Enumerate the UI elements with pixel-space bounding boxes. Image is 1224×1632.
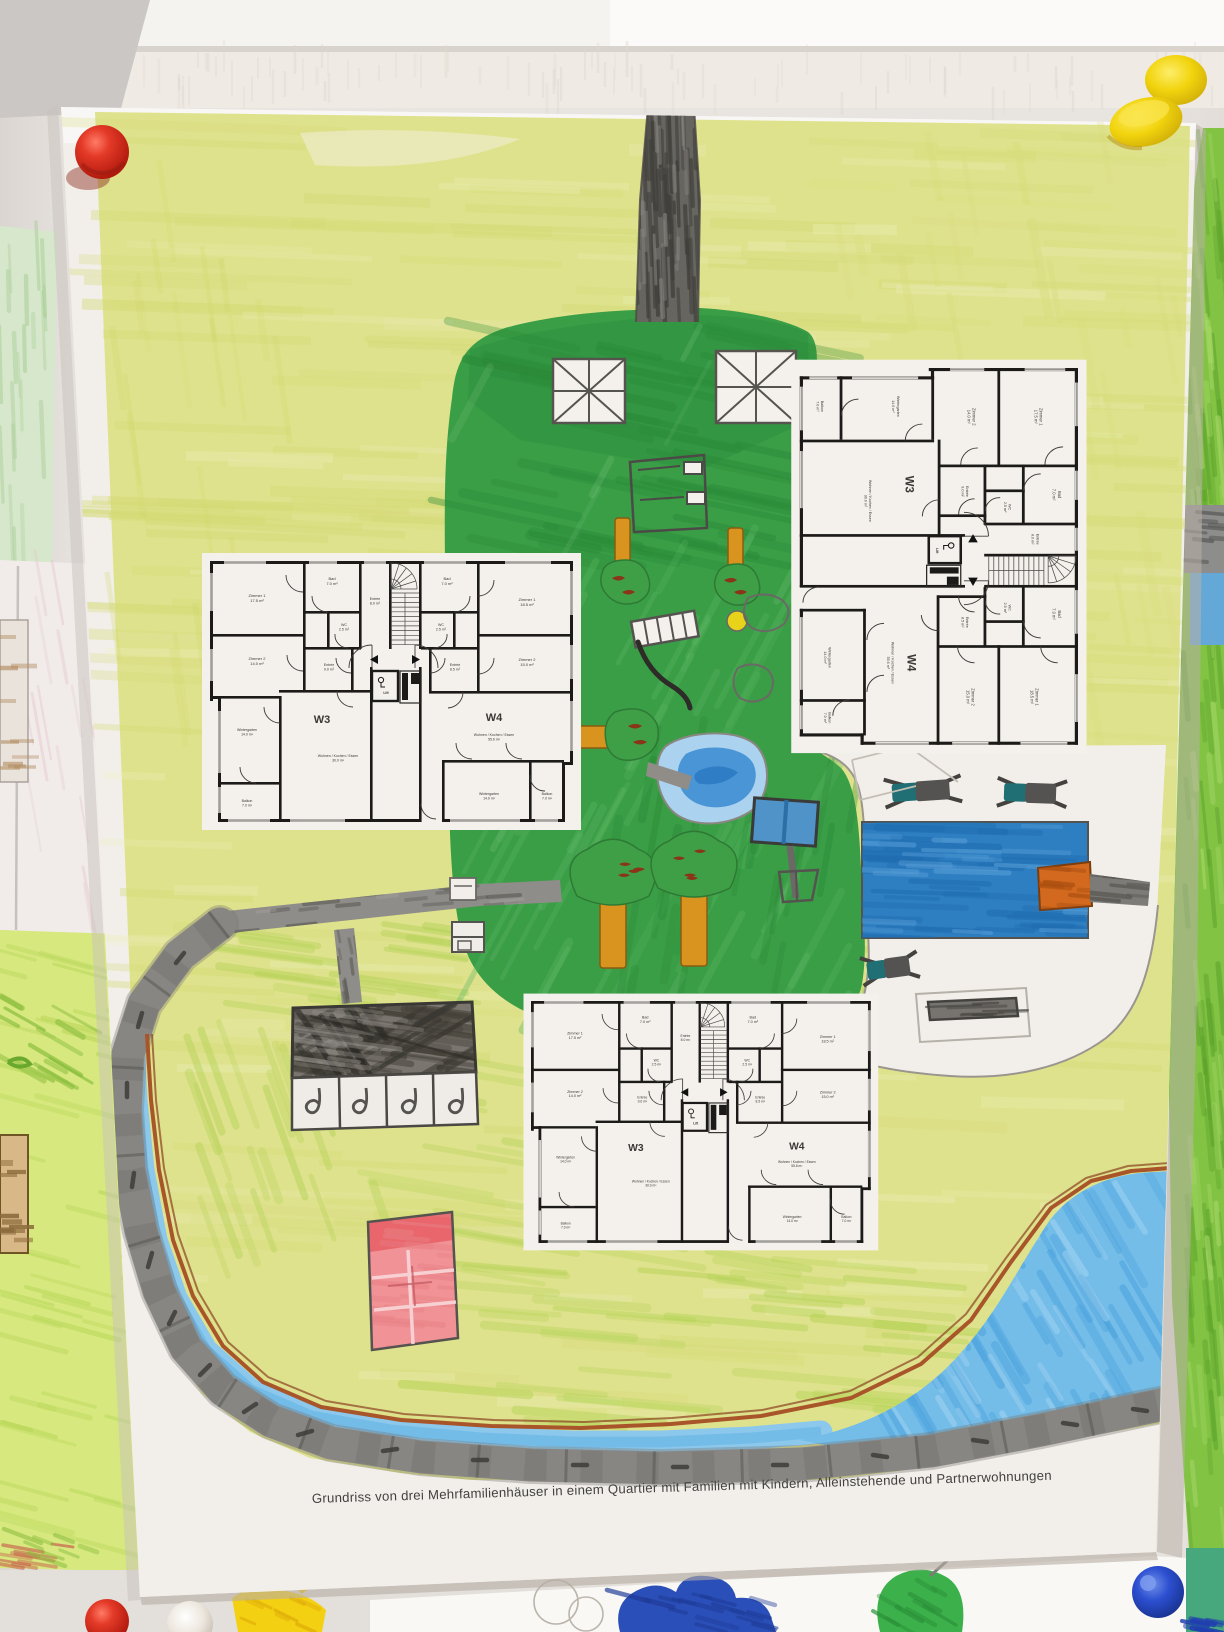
svg-text:W3: W3 xyxy=(628,1143,644,1154)
svg-text:Zimmer 118.5 m²: Zimmer 118.5 m² xyxy=(1029,688,1039,706)
svg-text:W4: W4 xyxy=(904,654,916,672)
svg-text:Balkon7.0 m²: Balkon7.0 m² xyxy=(815,401,824,412)
svg-text:Zimmer 215.0 m²: Zimmer 215.0 m² xyxy=(519,657,537,667)
svg-text:Lift: Lift xyxy=(935,548,939,554)
svg-text:Entrée8.0 m²: Entrée8.0 m² xyxy=(370,597,381,605)
svg-text:Lift: Lift xyxy=(383,691,389,695)
svg-text:Entrée9.0 m²: Entrée9.0 m² xyxy=(637,1095,648,1103)
svg-text:Entrée9.0 m²: Entrée9.0 m² xyxy=(960,486,969,497)
svg-text:Zimmer 117.5 m²: Zimmer 117.5 m² xyxy=(249,593,267,603)
svg-text:Entrée9.0 m²: Entrée9.0 m² xyxy=(324,663,335,671)
svg-text:W3: W3 xyxy=(902,476,914,494)
svg-text:Zimmer 214.0 m²: Zimmer 214.0 m² xyxy=(249,656,267,666)
svg-text:W4: W4 xyxy=(789,1141,805,1152)
svg-text:Balkon7.0 m²: Balkon7.0 m² xyxy=(242,799,253,807)
svg-text:Zimmer 215.0 m²: Zimmer 215.0 m² xyxy=(820,1091,836,1099)
svg-text:Zimmer 118.5 m²: Zimmer 118.5 m² xyxy=(820,1035,836,1043)
svg-text:Entrée8.5 m²: Entrée8.5 m² xyxy=(960,617,969,628)
svg-text:Zimmer 118.5 m²: Zimmer 118.5 m² xyxy=(519,597,537,607)
svg-text:Zimmer 214.0 m²: Zimmer 214.0 m² xyxy=(966,408,976,426)
svg-text:Balkon7.0 m²: Balkon7.0 m² xyxy=(561,1221,572,1229)
svg-text:Entrée8.0 m²: Entrée8.0 m² xyxy=(1031,534,1040,545)
svg-text:Zimmer 117.5 m²: Zimmer 117.5 m² xyxy=(1033,408,1043,426)
svg-text:Zimmer 215.0 m²: Zimmer 215.0 m² xyxy=(965,688,975,706)
svg-text:Zimmer 117.5 m²: Zimmer 117.5 m² xyxy=(567,1031,583,1039)
svg-text:Entrée8.0 m²: Entrée8.0 m² xyxy=(680,1034,691,1042)
svg-text:Balkon7.0 m²: Balkon7.0 m² xyxy=(823,712,832,723)
svg-text:Balkon7.0 m²: Balkon7.0 m² xyxy=(542,792,553,800)
svg-text:Zimmer 214.0 m²: Zimmer 214.0 m² xyxy=(567,1090,583,1098)
svg-text:Entrée8.5 m²: Entrée8.5 m² xyxy=(450,663,461,671)
svg-text:Entrée8.5 m²: Entrée8.5 m² xyxy=(755,1095,766,1103)
svg-text:Balkon7.0 m²: Balkon7.0 m² xyxy=(841,1215,852,1223)
svg-text:W3: W3 xyxy=(314,714,331,726)
svg-text:W4: W4 xyxy=(486,712,503,724)
